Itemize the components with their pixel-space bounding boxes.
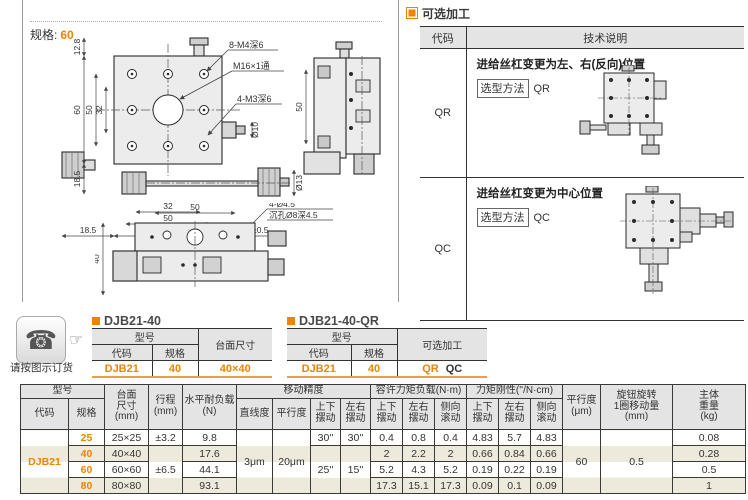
bottom-view-drawing: 50 40 4-Ø4.5 沉孔Ø8深4.5 [95, 203, 345, 303]
cell-load: 9.8 [183, 430, 237, 446]
cell-travel: ±6.5 [149, 446, 183, 494]
table-row: DJB21 25 25×25 ±3.2 9.8 3μm 20μm 30'' 30… [21, 430, 746, 446]
dim-label: 4-M3深6 [237, 94, 272, 104]
hdr-knob: 旋钮旋转 1圈移动量 (mm) [601, 385, 673, 430]
cell-knob-travel: 0.5 [601, 430, 673, 494]
dim-label: 60 [72, 105, 82, 115]
cell-m-roll: 0.4 [435, 430, 467, 446]
hdr-accuracy: 移动精度 [237, 385, 371, 399]
hdr-roll: 侧向 滚动 [531, 399, 563, 430]
hdr-code: 代码 [21, 399, 69, 430]
cell-pitch: 25'' [311, 446, 341, 494]
hdr-load: 水平耐负载 (N) [183, 385, 237, 430]
order-b-extra: 可选加工 [397, 329, 487, 361]
cell-r-roll: 0.66 [531, 446, 563, 462]
hdr-moment: 容许力矩负载(N·m) [371, 385, 467, 399]
specification-table: 型号 台面 尺寸 (mm) 行程 (mm) 水平耐负载 (N) 移动精度 容许力… [20, 384, 746, 494]
order-a-extra: 台面尺寸 [198, 329, 272, 361]
dim-label: 40 [95, 254, 101, 264]
phone-icon: ☎ [16, 316, 66, 364]
pointing-hand-icon: ☞ [69, 330, 83, 350]
cell-surface: 80×80 [105, 478, 149, 494]
cell-r-roll: 4.83 [531, 430, 563, 446]
cell-m-yaw: 4.3 [403, 462, 435, 478]
cell-m-pitch: 5.2 [371, 462, 403, 478]
dim-label: 18.5 [72, 170, 82, 187]
dotted-separator [30, 21, 382, 22]
cell-m-yaw: 15.1 [403, 478, 435, 494]
hdr-travel: 行程 (mm) [149, 385, 183, 430]
cell-parallelism2: 60 [563, 430, 601, 494]
dim-label: Ø10 [250, 122, 260, 138]
cell-straightness: 3μm [237, 430, 273, 494]
order-b-spec-value: 40 [351, 361, 397, 378]
table-row: DJB21 40 40×40 [92, 361, 272, 378]
cell-m-pitch: 0.4 [371, 430, 403, 446]
cell-m-pitch: 2 [371, 446, 403, 462]
cell-r-pitch: 4.83 [467, 430, 499, 446]
cell-r-yaw: 0.22 [499, 462, 531, 478]
cell-weight: 0.5 [673, 462, 746, 478]
cell-load: 93.1 [183, 478, 237, 494]
part-number-title-a: DJB21-40 [92, 314, 161, 328]
cell-pitch: 30'' [311, 430, 341, 446]
table-row: DJB21 40 QRQC [287, 361, 487, 378]
section-square-icon [406, 7, 418, 19]
order-a-extra-value: 40×40 [198, 361, 272, 378]
part-number-title-b: DJB21-40-QR [287, 314, 379, 328]
optional-machining-table: 代码 技术说明 QR 进给丝杠变更为左、右(反向)位置 选型方法QR [420, 26, 744, 321]
cell-spec: 25 [69, 430, 105, 446]
order-table-b: 型号 可选加工 代码 规格 DJB21 40 QRQC [287, 328, 487, 378]
method-box: 选型方法 [477, 79, 529, 98]
dim-label: 50 [296, 102, 304, 112]
cell-r-yaw: 0.1 [499, 478, 531, 494]
cell-r-pitch: 0.66 [467, 446, 499, 462]
dim-label: 4-Ø4.5 [269, 203, 295, 209]
side-view-drawing: 50 [296, 40, 396, 180]
order-b-spec: 规格 [351, 345, 397, 361]
hdr-yaw: 左右 摆动 [403, 399, 435, 430]
bullet-icon [92, 317, 100, 325]
hdr-weight: 主体 重量 (kg) [673, 385, 746, 430]
cell-m-roll: 2 [435, 446, 467, 462]
catalog-page: { "accent": "#f08300", "left": { "spec_l… [0, 0, 748, 500]
method-box: 选型方法 [477, 208, 529, 227]
cell-r-pitch: 0.19 [467, 462, 499, 478]
cell-weight: 0.28 [673, 446, 746, 462]
hdr-yaw: 左右 摆动 [341, 399, 371, 430]
dim-label: 50 [84, 105, 94, 115]
hdr-pitch: 上下 摆动 [467, 399, 499, 430]
cell-surface: 40×40 [105, 446, 149, 462]
cell-spec: 60 [69, 462, 105, 478]
hdr-surface: 台面 尺寸 (mm) [105, 385, 149, 430]
opt-code-qc: QC [420, 178, 466, 321]
cell-travel: ±3.2 [149, 430, 183, 446]
cell-weight: 1 [673, 478, 746, 494]
cell-r-yaw: 5.7 [499, 430, 531, 446]
cell-yaw: 15'' [341, 446, 371, 494]
hdr-parallelism2: 平行度 (μm) [563, 385, 601, 430]
cell-yaw: 30'' [341, 430, 371, 446]
dim-label: 50 [190, 203, 200, 212]
qc-option-drawing [614, 186, 736, 310]
dim-label: M16×1通 [233, 61, 270, 71]
cell-r-yaw: 0.84 [499, 446, 531, 462]
hdr-pitch: 上下 摆动 [371, 399, 403, 430]
hdr-yaw: 左右 摆动 [499, 399, 531, 430]
column-divider-rule [398, 0, 399, 302]
hdr-parallelism: 平行度 [273, 399, 311, 430]
opt-code-qr: QR [420, 49, 466, 178]
order-b-code-value: DJB21 [287, 361, 351, 378]
table-row: QC 进给丝杠变更为中心位置 选型方法QC [420, 178, 744, 321]
order-a-code: 代码 [92, 345, 152, 361]
table-row: QR 进给丝杠变更为左、右(反向)位置 选型方法QR [420, 49, 744, 178]
hdr-straightness: 直线度 [237, 399, 273, 430]
cell-spec: 80 [69, 478, 105, 494]
dim-label: 32 [94, 105, 104, 115]
cell-m-yaw: 2.2 [403, 446, 435, 462]
cell-r-roll: 0.19 [531, 462, 563, 478]
cell-m-yaw: 0.8 [403, 430, 435, 446]
order-b-code: 代码 [287, 345, 351, 361]
cell-r-pitch: 0.09 [467, 478, 499, 494]
hdr-roll: 侧向 滚动 [435, 399, 467, 430]
order-a-model: 型号 [92, 329, 198, 345]
cell-r-roll: 0.09 [531, 478, 563, 494]
opt-col-desc: 技术说明 [466, 27, 744, 49]
cell-load: 44.1 [183, 462, 237, 478]
qr-option-drawing [578, 65, 682, 167]
hdr-rigidity: 力矩刚性(''/N·cm) [467, 385, 563, 399]
left-margin-rule [22, 0, 23, 302]
order-b-extra-value: QRQC [397, 361, 487, 378]
order-a-spec-value: 40 [152, 361, 198, 378]
cell-m-pitch: 17.3 [371, 478, 403, 494]
hdr-spec: 规格 [69, 399, 105, 430]
opt-col-code: 代码 [420, 27, 466, 49]
bullet-icon [287, 317, 295, 325]
order-a-code-value: DJB21 [92, 361, 152, 378]
dim-label: 12.8 [72, 38, 82, 55]
dim-label: 沉孔Ø8深4.5 [269, 210, 318, 220]
cell-load: 17.6 [183, 446, 237, 462]
order-note: 请按图示订货 [10, 360, 73, 375]
cell-code: DJB21 [21, 430, 69, 494]
cell-surface: 60×60 [105, 462, 149, 478]
cell-surface: 25×25 [105, 430, 149, 446]
order-a-spec: 规格 [152, 345, 198, 361]
cell-weight: 0.08 [673, 430, 746, 446]
cell-parallelism: 20μm [273, 430, 311, 494]
hdr-pitch: 上下 摆动 [311, 399, 341, 430]
opt-desc-qr: 进给丝杠变更为左、右(反向)位置 选型方法QR [466, 49, 744, 178]
dim-label: 8-M4深6 [229, 40, 264, 50]
order-table-a: 型号 台面尺寸 代码 规格 DJB21 40 40×40 [92, 328, 272, 378]
cell-m-roll: 5.2 [435, 462, 467, 478]
order-b-model: 型号 [287, 329, 397, 345]
cell-spec: 40 [69, 446, 105, 462]
hdr-model: 型号 [21, 385, 105, 399]
opt-desc-qc: 进给丝杠变更为中心位置 选型方法QC [466, 178, 744, 321]
cell-m-roll: 17.3 [435, 478, 467, 494]
optional-machining-title: 可选加工 [406, 5, 470, 22]
